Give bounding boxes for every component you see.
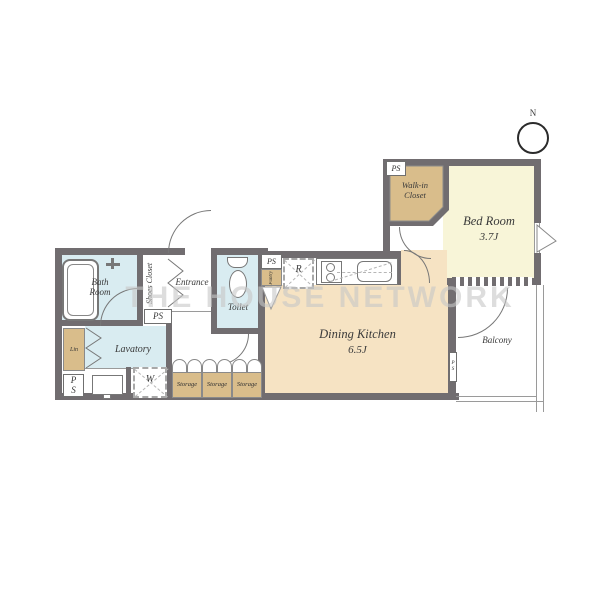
walkin-closet-label: Walk-in Closet <box>392 181 438 200</box>
balcony-rail-right-outer <box>543 285 544 412</box>
west-wall-top <box>55 248 185 255</box>
dining-kitchen-name: Dining Kitchen <box>300 327 415 341</box>
ps-box-walkin: PS <box>386 161 406 176</box>
balcony-rail-bottom-outer <box>456 401 544 402</box>
compass-north-label: N <box>526 108 540 118</box>
ps-box-shoes: PS <box>144 309 172 324</box>
bedroom-sliding-window <box>452 277 532 286</box>
linen-label: Lin <box>70 347 78 353</box>
washbasin-wall-stub <box>126 367 131 400</box>
bedroom-window-frame-left <box>534 223 535 253</box>
ps-box-lavatory: PS <box>63 374 84 397</box>
compass-icon <box>517 122 549 154</box>
counter-dash-horizontal <box>337 272 392 273</box>
toilet-bowl <box>229 270 247 298</box>
ps-box-balcony: PS <box>449 352 457 382</box>
entrance-step-line <box>172 311 211 312</box>
floor-plan: R W Storage Storage Storage Lin Pantry P… <box>0 0 600 600</box>
toilet-wall-left <box>211 255 217 334</box>
balcony-rail-bottom-inner <box>456 396 537 397</box>
storage-label: Storage <box>237 382 257 389</box>
bedroom-name: Bed Room <box>448 214 530 228</box>
washbasin <box>92 375 123 395</box>
ps-label: PS <box>69 376 78 395</box>
toilet-wall-top <box>211 248 268 255</box>
balcony-label: Balcony <box>469 335 525 345</box>
refrigerator-label: R <box>283 264 314 275</box>
balcony-rail-right-inner <box>536 285 537 412</box>
dining-kitchen-size: 6.5J <box>300 344 415 356</box>
kitchen-wall-top <box>265 251 401 258</box>
bedroom-window-frame-right <box>539 223 540 253</box>
shoes-closet-label: Shoes Closet <box>146 256 164 310</box>
bedroom-size: 3.7J <box>448 231 530 243</box>
toilet-label: Toilet <box>219 302 257 312</box>
ps-label: PS <box>267 258 276 266</box>
storage-label: Storage <box>177 382 197 389</box>
washbasin-tap <box>103 394 111 399</box>
stove-burner-top <box>326 263 335 272</box>
storage-box-1: Storage <box>172 372 202 398</box>
west-wall-left <box>55 248 62 400</box>
storage-box-2: Storage <box>202 372 232 398</box>
toilet-tank <box>227 257 248 268</box>
balcony-door-arc <box>458 288 508 338</box>
ps-label: PS <box>451 361 456 373</box>
ps-label: PS <box>392 165 401 173</box>
storage-label: Storage <box>207 382 227 389</box>
washer-label: W <box>133 374 167 385</box>
entry-door-arc <box>168 210 211 253</box>
pantry-box: Pantry <box>261 269 282 286</box>
storage-box-3: Storage <box>232 372 262 398</box>
bath-room-label: Bath Room <box>80 277 120 297</box>
pantry-label: Pantry <box>269 271 274 285</box>
ps-label: PS <box>153 312 163 321</box>
entrance-label: Entrance <box>167 277 217 287</box>
linen-closet: Lin <box>63 328 85 371</box>
lavatory-label: Lavatory <box>103 344 163 355</box>
ps-box-toilet: PS <box>261 254 282 269</box>
bedroom-wall-right-upper <box>534 159 541 223</box>
bedroom-wall-top <box>383 159 541 166</box>
